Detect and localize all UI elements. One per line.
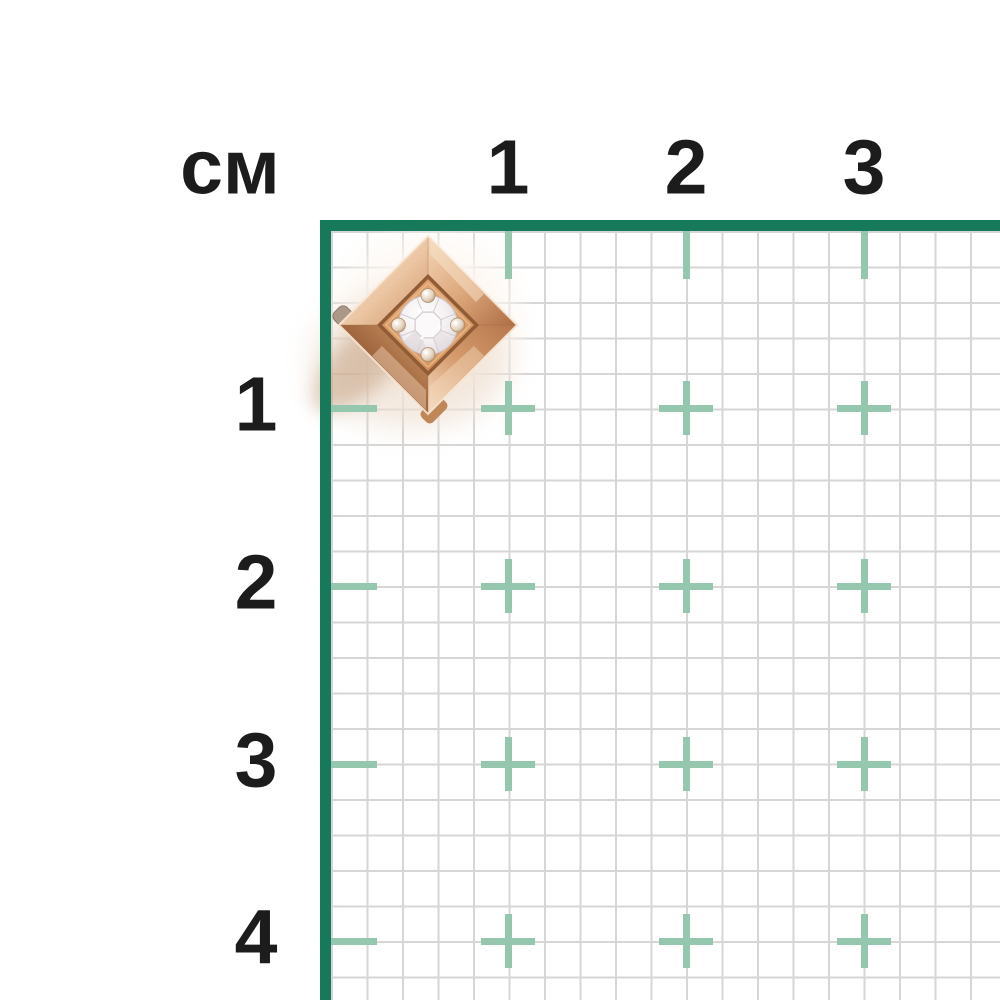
cm-tick-left-4 — [331, 938, 377, 945]
y-axis-label-1: 1 — [235, 367, 278, 444]
cm-tick-top-2 — [683, 231, 690, 279]
cm-cross-mark — [837, 381, 891, 435]
x-axis-label-1: 1 — [487, 130, 530, 207]
measurement-grid-stage: см 1 2 3 1 2 3 4 — [0, 0, 1000, 1000]
cm-tick-left-2 — [331, 583, 377, 590]
y-axis-label-3: 3 — [235, 723, 278, 800]
y-axis-label-4: 4 — [235, 900, 278, 977]
product-photo-jewel — [308, 205, 548, 445]
cm-cross-mark — [481, 559, 535, 613]
cm-cross-mark — [659, 559, 713, 613]
cm-cross-mark — [837, 559, 891, 613]
cm-cross-mark — [481, 914, 535, 968]
diamond-stone — [399, 296, 458, 355]
cm-cross-mark — [837, 914, 891, 968]
cm-cross-mark — [659, 737, 713, 791]
cm-cross-mark — [659, 914, 713, 968]
cm-cross-mark — [837, 737, 891, 791]
cm-tick-top-3 — [861, 231, 868, 279]
y-axis-label-2: 2 — [235, 545, 278, 622]
cm-cross-mark — [659, 381, 713, 435]
x-axis-label-2: 2 — [665, 130, 708, 207]
cm-tick-left-3 — [331, 761, 377, 768]
x-axis-label-3: 3 — [843, 130, 886, 207]
cm-cross-mark — [481, 737, 535, 791]
unit-label: см — [180, 130, 280, 207]
